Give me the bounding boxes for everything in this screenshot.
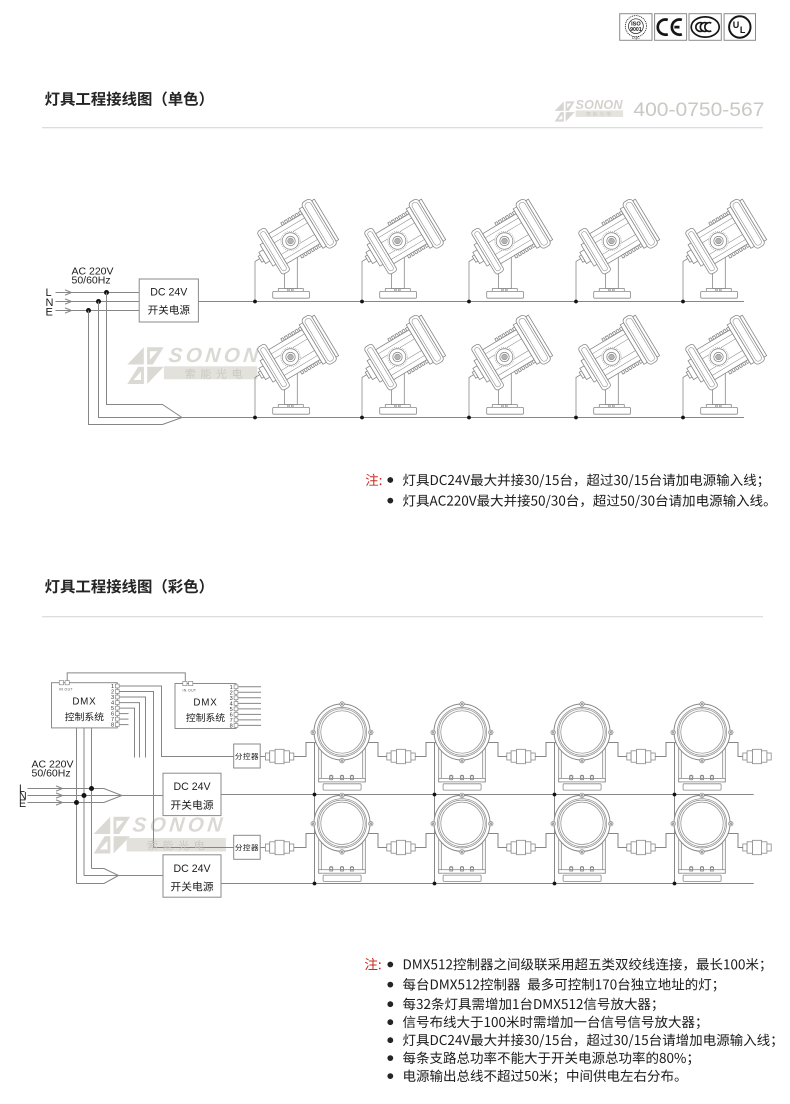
svg-text:8: 8 <box>230 723 233 729</box>
svg-text:DMX: DMX <box>72 697 96 708</box>
svg-text:SONON: SONON <box>576 98 624 112</box>
svg-text:50/60Hz: 50/60Hz <box>72 275 111 287</box>
svg-text:8: 8 <box>111 723 114 729</box>
svg-text:E: E <box>46 306 53 318</box>
svg-text:E: E <box>19 798 26 810</box>
svg-text:U: U <box>733 20 740 30</box>
svg-text:DC 24V: DC 24V <box>150 286 188 298</box>
svg-text:9001: 9001 <box>630 27 642 33</box>
svg-text:400-0750-567: 400-0750-567 <box>633 99 764 121</box>
svg-text:CQC: CQC <box>632 36 640 40</box>
svg-text:IN OUT: IN OUT <box>183 688 197 692</box>
svg-text:IN OUT: IN OUT <box>59 688 73 692</box>
svg-text:DMX: DMX <box>193 697 217 708</box>
svg-text:DC 24V: DC 24V <box>173 781 211 793</box>
svg-text:L: L <box>740 25 746 35</box>
svg-text:50/60Hz: 50/60Hz <box>32 768 71 780</box>
svg-text:SONON: SONON <box>167 344 263 367</box>
svg-text:SONON: SONON <box>131 813 227 836</box>
svg-text:DC 24V: DC 24V <box>173 863 211 875</box>
